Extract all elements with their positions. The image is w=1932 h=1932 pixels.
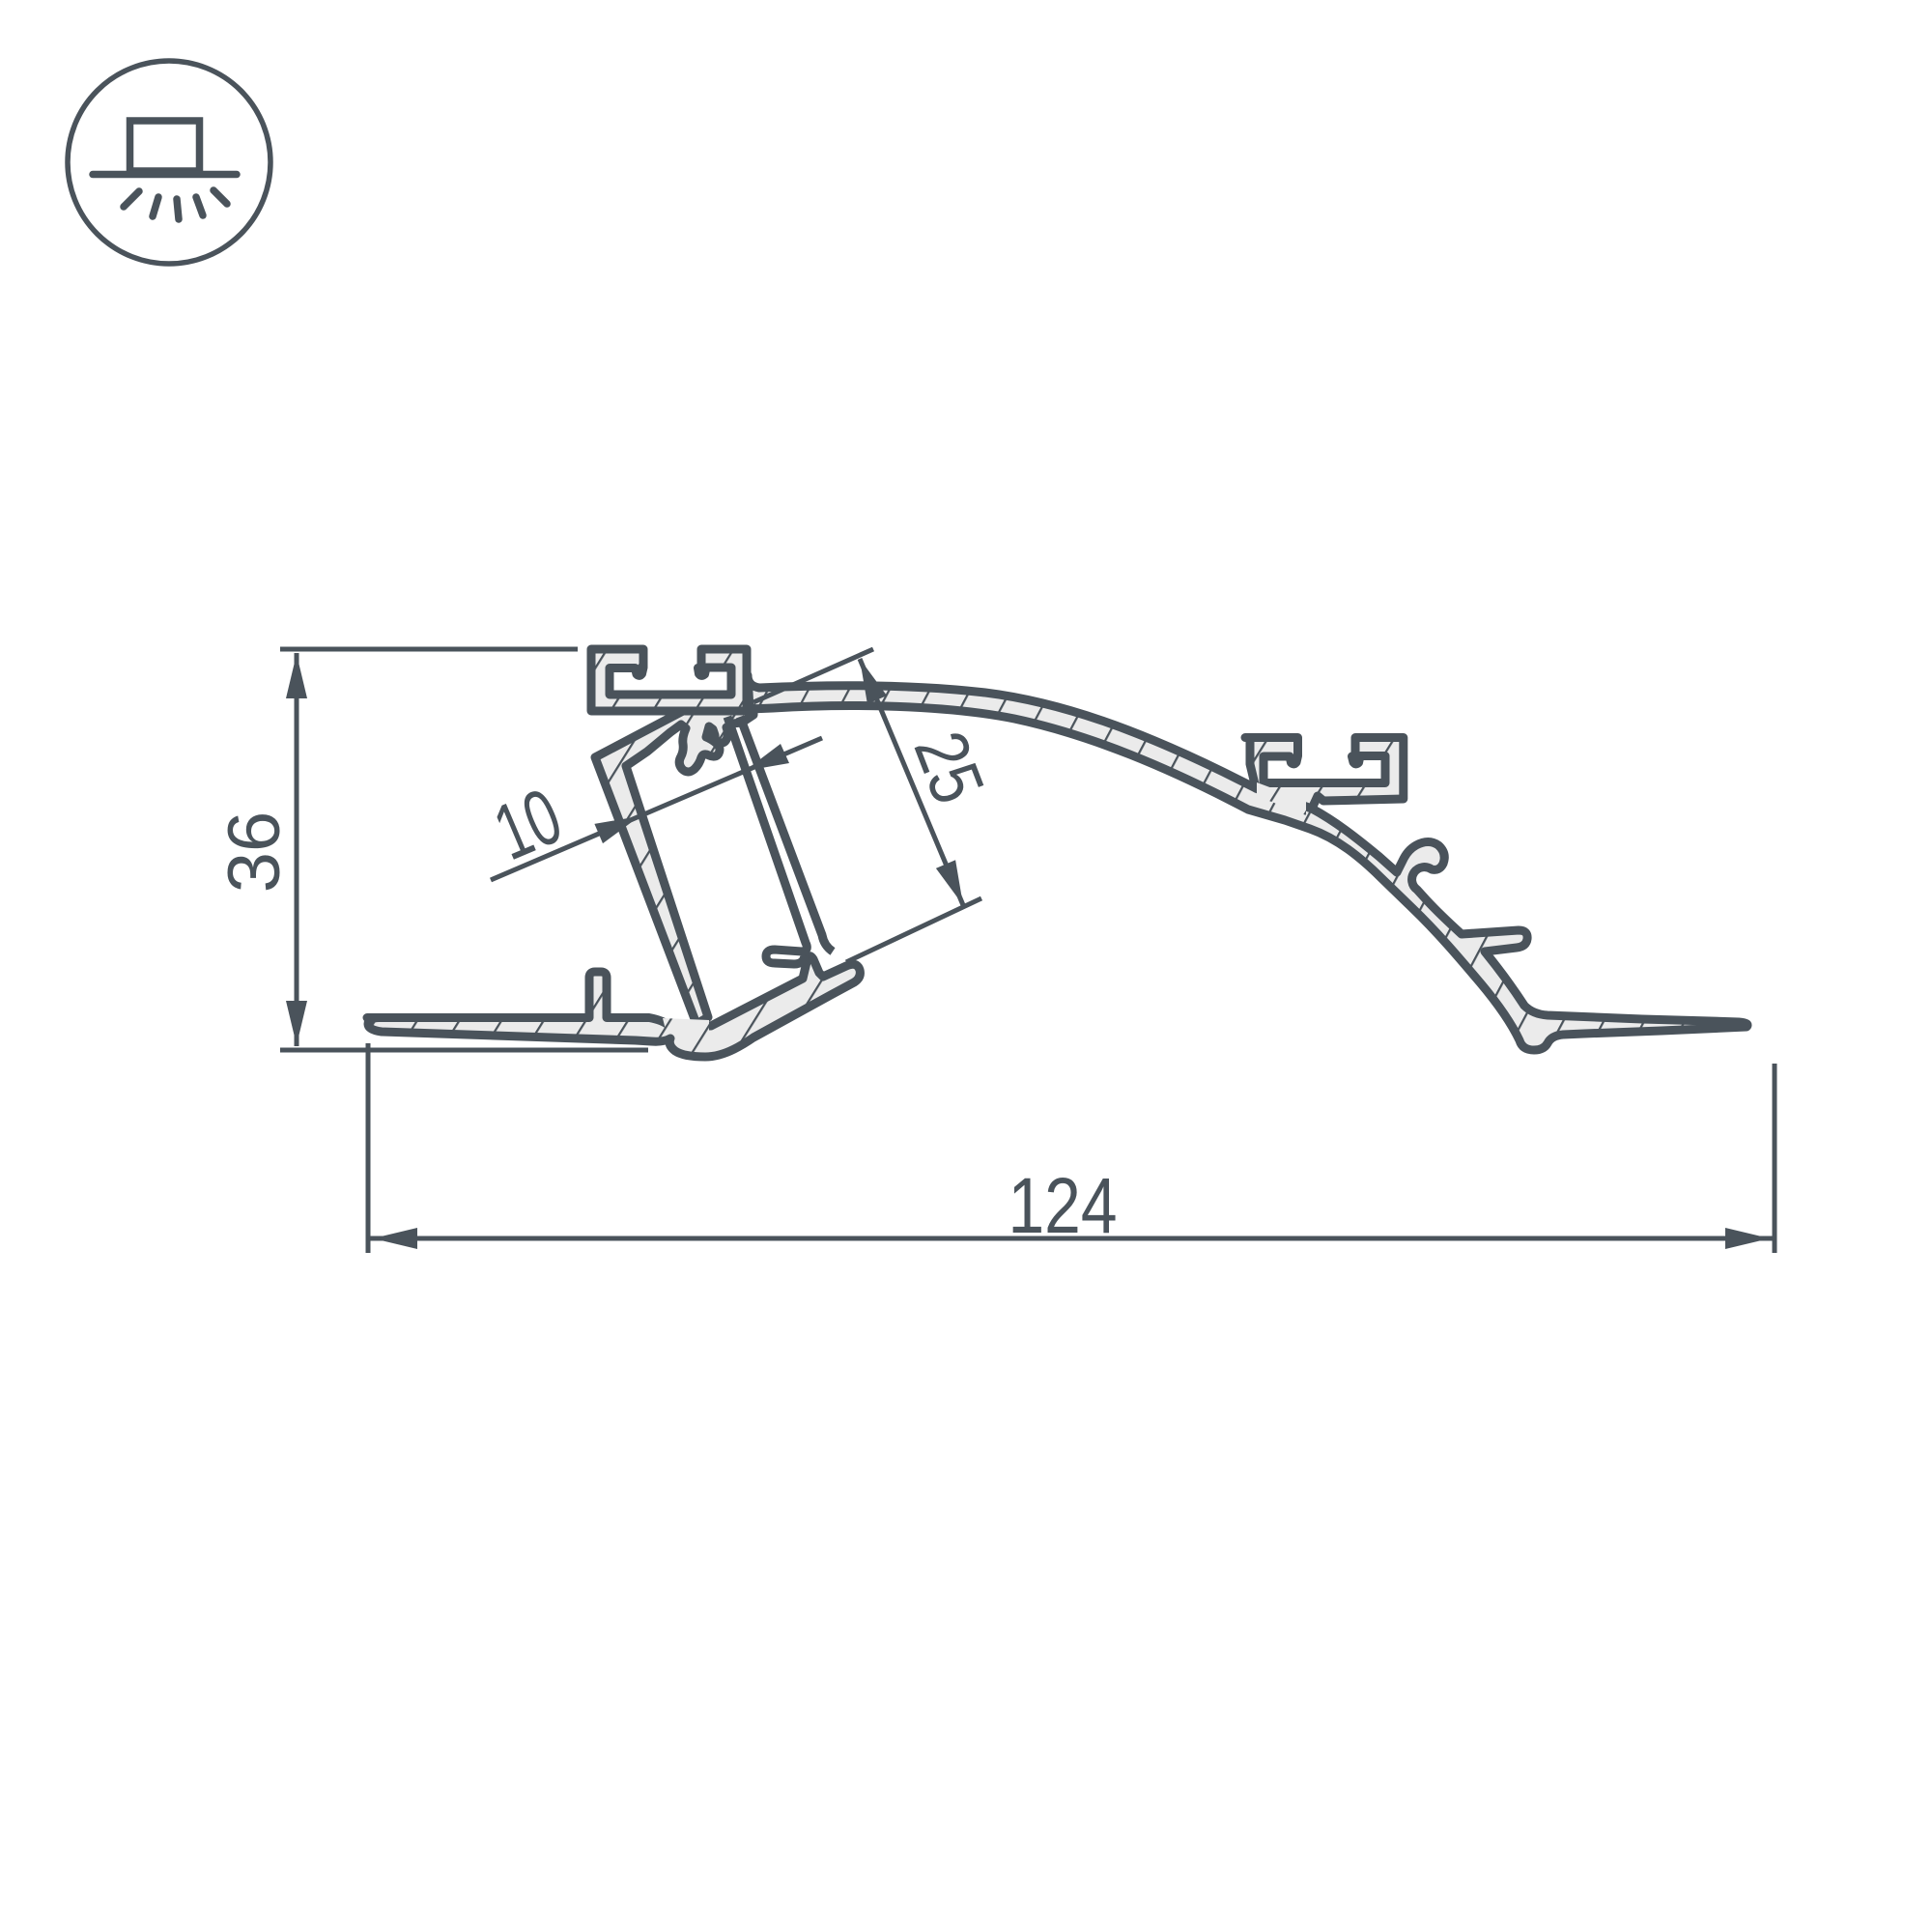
svg-text:25: 25 [898,722,1000,814]
svg-text:36: 36 [213,811,296,894]
svg-text:124: 124 [1009,1162,1118,1250]
svg-text:10: 10 [482,772,573,877]
